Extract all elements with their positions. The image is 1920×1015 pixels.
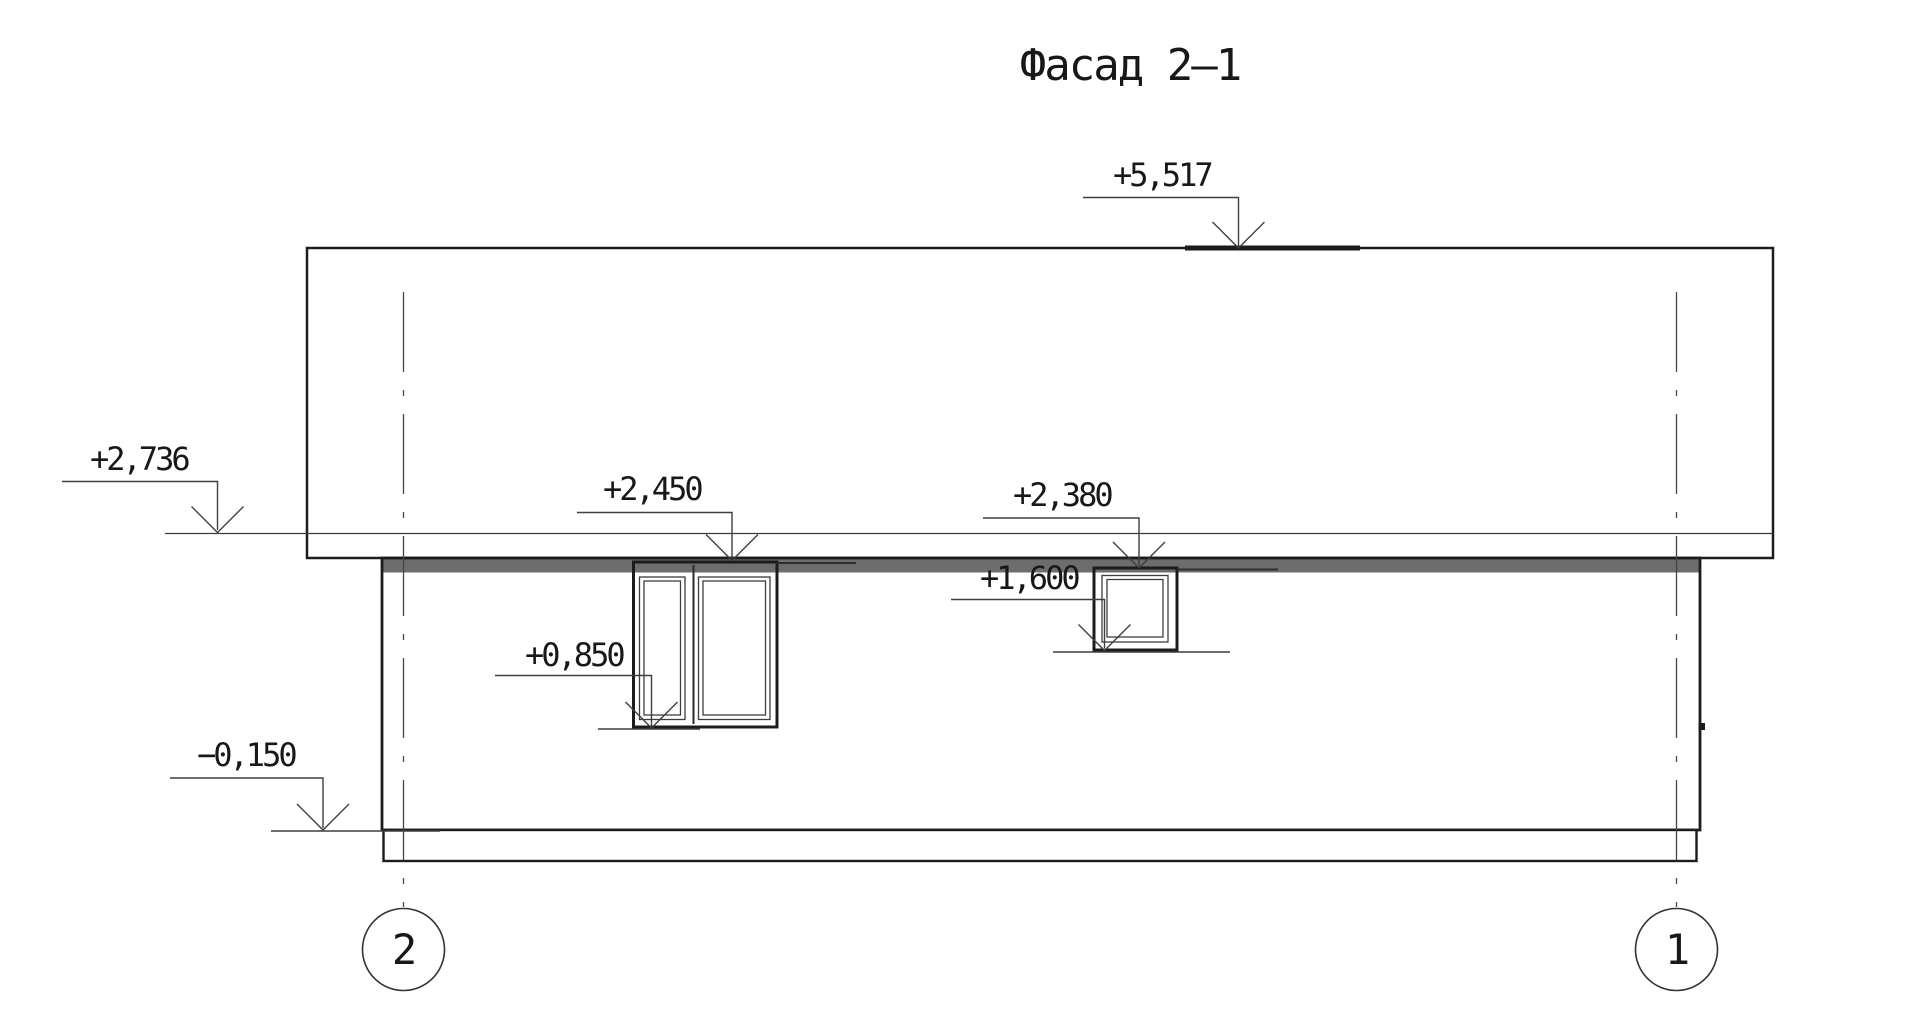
window-small [1094, 568, 1177, 650]
window-large-glass [637, 573, 774, 725]
grid-bubble-1: 1 [1636, 909, 1718, 991]
roof [165, 248, 1773, 558]
elevation-value: +1,600 [980, 559, 1079, 597]
elevation-value: +2,450 [603, 470, 702, 508]
drawing-title: Фасад 2–1 [1020, 40, 1240, 91]
elevation-leader [1083, 198, 1239, 247]
elevation-mark-eaves: +2,736 [62, 440, 244, 533]
facade-elevation-sheet: Фасад 2–1 2 1 [0, 0, 1920, 1015]
elevation-leader [170, 778, 323, 828]
elevation-value: +2,736 [90, 440, 189, 478]
window-large [634, 562, 778, 727]
grid-bubble-1-label: 1 [1665, 925, 1688, 974]
elevation-mark-roof-top: +5,517 [1083, 156, 1265, 248]
elevation-value: −0,150 [197, 736, 296, 774]
grid-bubble-2: 2 [363, 909, 445, 991]
wall-edge-tick [1699, 723, 1706, 730]
elevation-leader [62, 482, 218, 531]
grid-bubble-2-label: 2 [392, 925, 415, 974]
elevation-value: +2,380 [1013, 476, 1112, 514]
facade-drawing: Фасад 2–1 2 1 [0, 0, 1920, 1015]
plinth-outline [384, 830, 1697, 861]
elevation-value: +0,850 [525, 636, 624, 674]
elevation-value: +5,517 [1113, 156, 1211, 194]
